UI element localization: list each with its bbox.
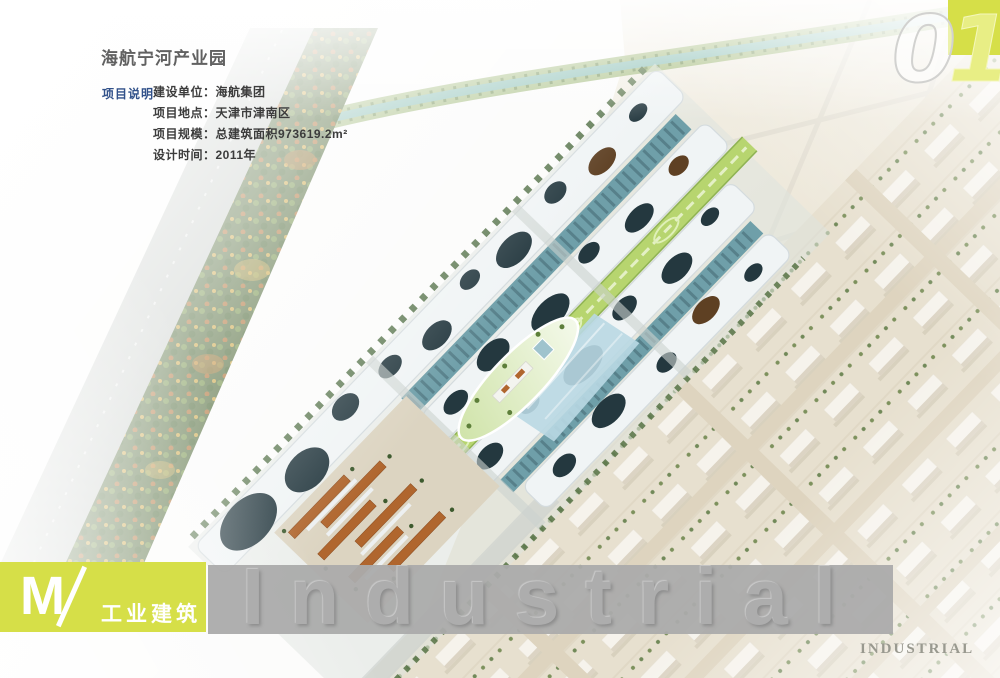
digit-zero: 0: [892, 0, 956, 103]
category-label: 工业建筑: [101, 598, 201, 628]
portfolio-page: 海航宁河产业园 项目说明 建设单位：海航集团 项目地点：天津市津南区 项目规模：…: [0, 0, 1000, 678]
watermark-text: Industrial: [208, 565, 893, 629]
project-description-label: 项目说明: [102, 85, 154, 102]
watermark-band: Industrial: [208, 565, 893, 634]
project-line-scale: 项目规模：总建筑面积973619.2m²: [153, 127, 348, 148]
project-description: 建设单位：海航集团 项目地点：天津市津南区 项目规模：总建筑面积973619.2…: [153, 85, 348, 169]
industrial-caption: INDUSTRIAL: [860, 641, 974, 658]
index-badge: M 工业建筑: [0, 562, 206, 632]
project-line-owner: 建设单位：海航集团: [153, 85, 348, 106]
project-line-location: 项目地点：天津市津南区: [153, 106, 348, 127]
page-title: 海航宁河产业园: [101, 44, 227, 69]
digit-one: 1: [948, 0, 1000, 103]
page-number-graphic: 0 1: [840, 0, 1000, 110]
project-line-year: 设计时间：2011年: [153, 148, 348, 169]
